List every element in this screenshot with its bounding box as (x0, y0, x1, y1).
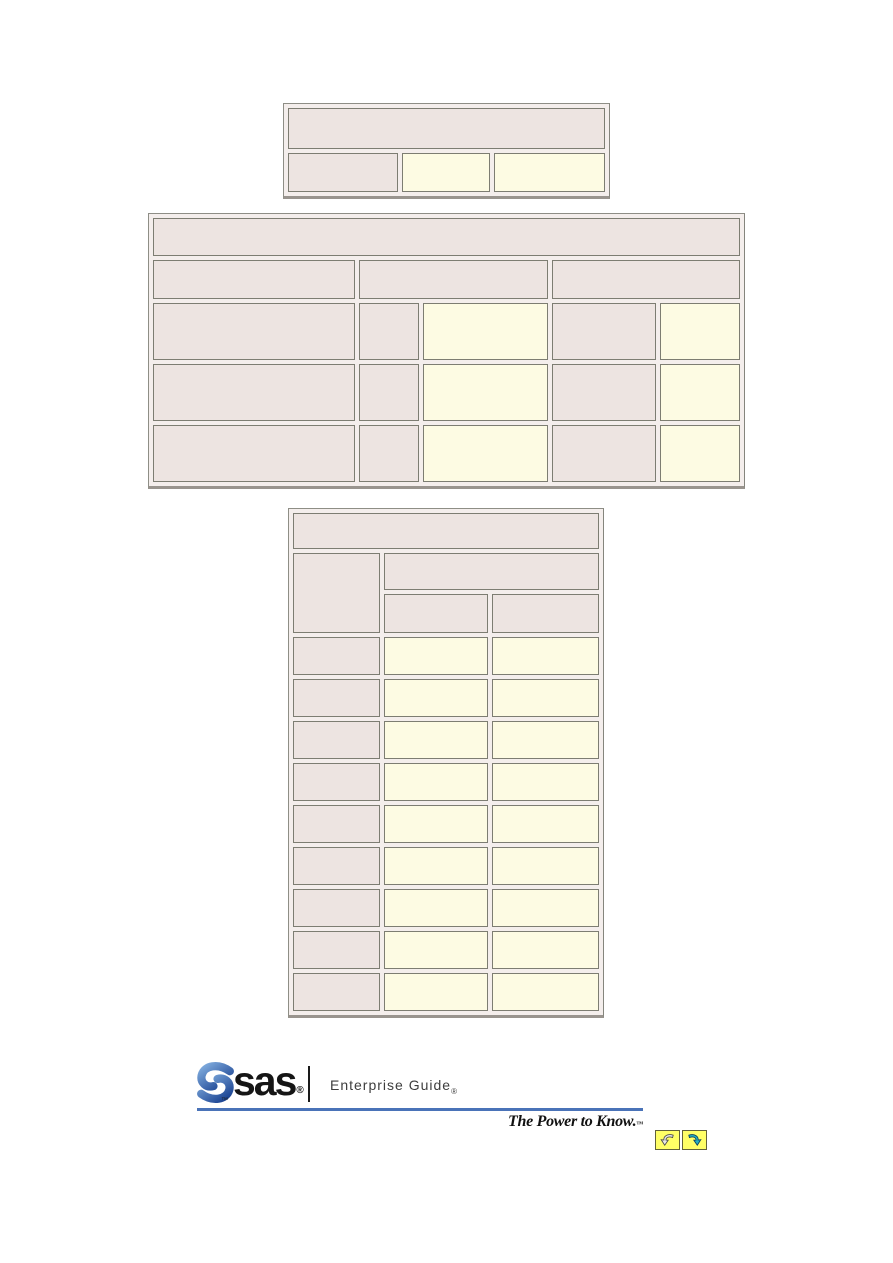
bottom-table-body-row (293, 679, 599, 717)
sas-logo-swirl-icon (196, 1062, 235, 1103)
middle-table-column-header-cell (552, 260, 740, 299)
curved-arrow-next-icon (686, 1133, 703, 1147)
bottom-table-spanning-header-cell (384, 553, 599, 590)
middle-table-data-cell (660, 425, 740, 482)
bottom-table-title-cell (293, 513, 599, 549)
nav-next-button[interactable] (682, 1130, 707, 1150)
middle-table-row-subheader-cell (552, 303, 656, 360)
bottom-table-data-cell (492, 637, 599, 675)
bottom-table-data-cell (384, 637, 488, 675)
bottom-table-data-cell (492, 763, 599, 801)
bottom-table-data-cell (384, 763, 488, 801)
bottom-table (288, 508, 604, 1018)
bottom-table-body-row (293, 763, 599, 801)
top-table-data-cell (494, 153, 605, 192)
bottom-table-body-row (293, 889, 599, 927)
middle-table-row-subheader-cell (359, 364, 419, 421)
middle-table-row-subheader-cell (552, 364, 656, 421)
bottom-table-column-header-cell (492, 594, 599, 633)
bottom-table-data-cell (492, 889, 599, 927)
tagline-trademark: ™ (636, 1120, 643, 1128)
nav-previous-button[interactable] (655, 1130, 680, 1150)
bottom-table-row-header-cell (293, 805, 380, 843)
bottom-table-corner-header-cell (293, 553, 380, 633)
middle-table-body-row (153, 364, 740, 421)
middle-table-row-subheader-cell (552, 425, 656, 482)
bottom-table-data-cell (492, 973, 599, 1011)
bottom-table-row-header-cell (293, 637, 380, 675)
bottom-table-row-header-cell (293, 847, 380, 885)
bottom-table-data-cell (384, 973, 488, 1011)
middle-table-column-header-cell (153, 260, 355, 299)
bottom-table-data-cell (384, 679, 488, 717)
middle-table-body-row (153, 425, 740, 482)
middle-table-row-subheader-cell (359, 303, 419, 360)
bottom-table-row-header-cell (293, 721, 380, 759)
top-table-title-cell (288, 108, 605, 149)
middle-table-data-cell (423, 425, 548, 482)
report-page: ™ sas® Enterprise Guide® The Power to Kn… (0, 0, 893, 1263)
bottom-table-row-header-cell (293, 931, 380, 969)
bottom-table-body-row (293, 721, 599, 759)
bottom-table-body-row (293, 931, 599, 969)
product-name-text: Enterprise Guide (330, 1077, 451, 1093)
bottom-table-data-cell (492, 847, 599, 885)
top-table (283, 103, 610, 199)
sas-wordmark: sas® (233, 1061, 303, 1102)
middle-table (148, 213, 745, 489)
middle-table-row-header-cell (153, 425, 355, 482)
middle-table-column-header-cell (359, 260, 548, 299)
bottom-table-body-row (293, 805, 599, 843)
middle-table-title-cell (153, 218, 740, 256)
bottom-table-data-cell (384, 805, 488, 843)
middle-table-data-cell (423, 303, 548, 360)
bottom-table-data-cell (492, 679, 599, 717)
curved-arrow-previous-icon (659, 1133, 676, 1147)
bottom-table-data-cell (492, 721, 599, 759)
product-name: Enterprise Guide® (330, 1077, 457, 1096)
logo-divider (308, 1066, 310, 1102)
tagline: The Power to Know.™ (343, 1113, 643, 1131)
bottom-table-body-row (293, 637, 599, 675)
middle-table-row-header-cell (153, 364, 355, 421)
footer-rule (197, 1108, 643, 1111)
bottom-table-column-header-cell (384, 594, 488, 633)
bottom-table-data-cell (492, 931, 599, 969)
middle-table-data-cell (423, 364, 548, 421)
middle-table-row-subheader-cell (359, 425, 419, 482)
bottom-table-row-header-cell (293, 679, 380, 717)
product-registered-mark: ® (451, 1087, 457, 1096)
sas-registered-mark: ® (296, 1085, 303, 1096)
bottom-table-row-header-cell (293, 889, 380, 927)
bottom-table-data-cell (384, 889, 488, 927)
middle-table-data-cell (660, 303, 740, 360)
bottom-table-row-header-cell (293, 763, 380, 801)
bottom-table-body-row (293, 847, 599, 885)
bottom-table-body-row (293, 973, 599, 1011)
bottom-table-row-header-cell (293, 973, 380, 1011)
middle-table-data-cell (660, 364, 740, 421)
top-table-row-header-cell (288, 153, 398, 192)
middle-table-row-header-cell (153, 303, 355, 360)
tagline-text: The Power to Know. (508, 1113, 636, 1130)
sas-logo-trademark: ™ (221, 1097, 228, 1104)
bottom-table-data-cell (384, 931, 488, 969)
navigation-buttons (655, 1130, 707, 1150)
sas-wordmark-text: sas (233, 1058, 295, 1104)
middle-table-body-row (153, 303, 740, 360)
bottom-table-data-cell (384, 721, 488, 759)
bottom-table-data-cell (492, 805, 599, 843)
bottom-table-data-cell (384, 847, 488, 885)
top-table-data-cell (402, 153, 490, 192)
